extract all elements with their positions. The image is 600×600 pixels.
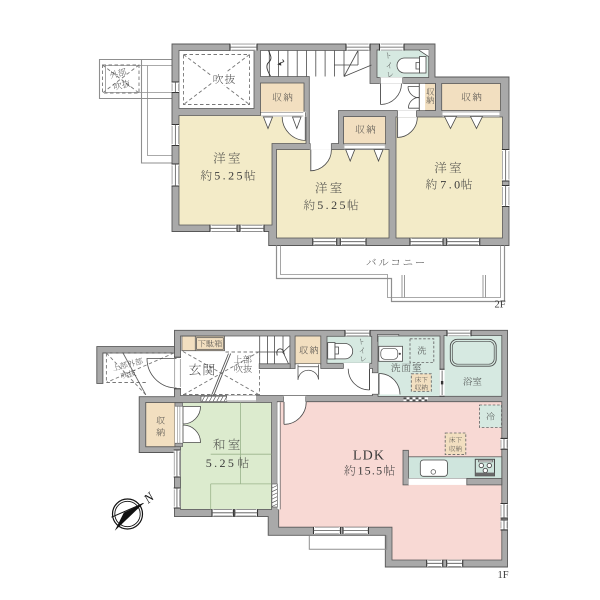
svg-text:15.5: 15.5 xyxy=(357,464,383,478)
svg-text:1F: 1F xyxy=(497,570,508,581)
svg-text:5.25: 5.25 xyxy=(206,456,237,470)
svg-text:7.0: 7.0 xyxy=(440,177,462,191)
svg-text:5.25: 5.25 xyxy=(317,198,348,212)
svg-text:5.25: 5.25 xyxy=(214,169,245,183)
svg-text:LDK: LDK xyxy=(353,449,385,464)
svg-text:2F: 2F xyxy=(494,300,505,311)
